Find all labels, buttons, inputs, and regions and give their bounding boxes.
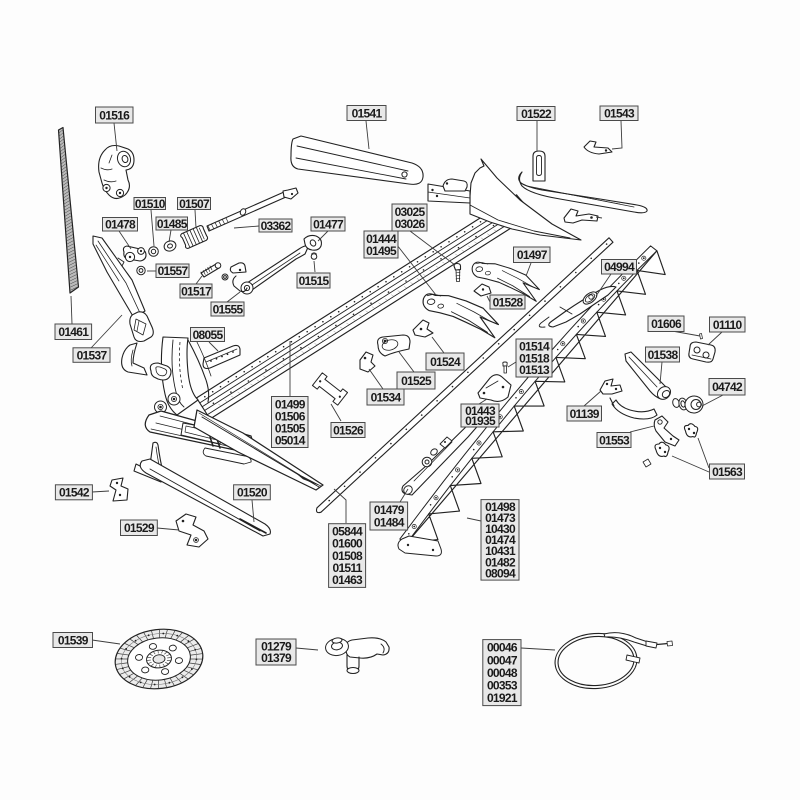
svg-text:04742: 04742 [712,380,743,394]
svg-text:01478: 01478 [105,218,136,232]
svg-text:01606: 01606 [651,317,682,331]
svg-text:01543: 01543 [604,107,635,121]
svg-text:01524: 01524 [430,355,461,369]
svg-text:08094: 08094 [485,566,516,580]
svg-text:01534: 01534 [371,390,402,404]
svg-text:01379: 01379 [261,651,292,665]
svg-text:01539: 01539 [58,633,89,647]
svg-text:01461: 01461 [58,325,89,339]
svg-text:05014: 05014 [275,433,306,447]
svg-text:01517: 01517 [181,284,212,298]
svg-text:01537: 01537 [77,348,108,362]
svg-text:01477: 01477 [313,217,344,231]
svg-text:01563: 01563 [712,465,743,479]
svg-text:01935: 01935 [465,414,496,428]
svg-text:01538: 01538 [648,348,679,362]
svg-text:01516: 01516 [99,108,130,122]
svg-text:01529: 01529 [124,521,155,535]
svg-text:03026: 03026 [395,217,426,231]
svg-text:01542: 01542 [59,486,90,500]
svg-text:01110: 01110 [713,318,743,332]
svg-text:01495: 01495 [366,244,397,258]
svg-text:01497: 01497 [517,248,548,262]
svg-text:01557: 01557 [158,264,189,278]
svg-text:01526: 01526 [333,423,364,437]
svg-text:01513: 01513 [519,363,550,377]
svg-text:01553: 01553 [599,433,630,447]
svg-text:03362: 03362 [261,219,292,233]
svg-text:01485: 01485 [157,217,188,231]
svg-text:01507: 01507 [179,197,210,211]
svg-text:01555: 01555 [213,302,244,316]
svg-text:01921: 01921 [487,691,518,705]
svg-text:01520: 01520 [237,486,268,500]
svg-text:01484: 01484 [374,516,405,530]
svg-text:01528: 01528 [493,295,524,309]
svg-text:08055: 08055 [193,328,224,342]
svg-text:01510: 01510 [135,197,166,211]
svg-text:01139: 01139 [570,407,600,421]
svg-text:01522: 01522 [521,107,552,121]
svg-text:01525: 01525 [401,374,432,388]
svg-text:01463: 01463 [332,573,363,587]
svg-text:01515: 01515 [299,274,330,288]
svg-text:04994: 04994 [604,260,635,274]
svg-text:01541: 01541 [352,106,383,120]
